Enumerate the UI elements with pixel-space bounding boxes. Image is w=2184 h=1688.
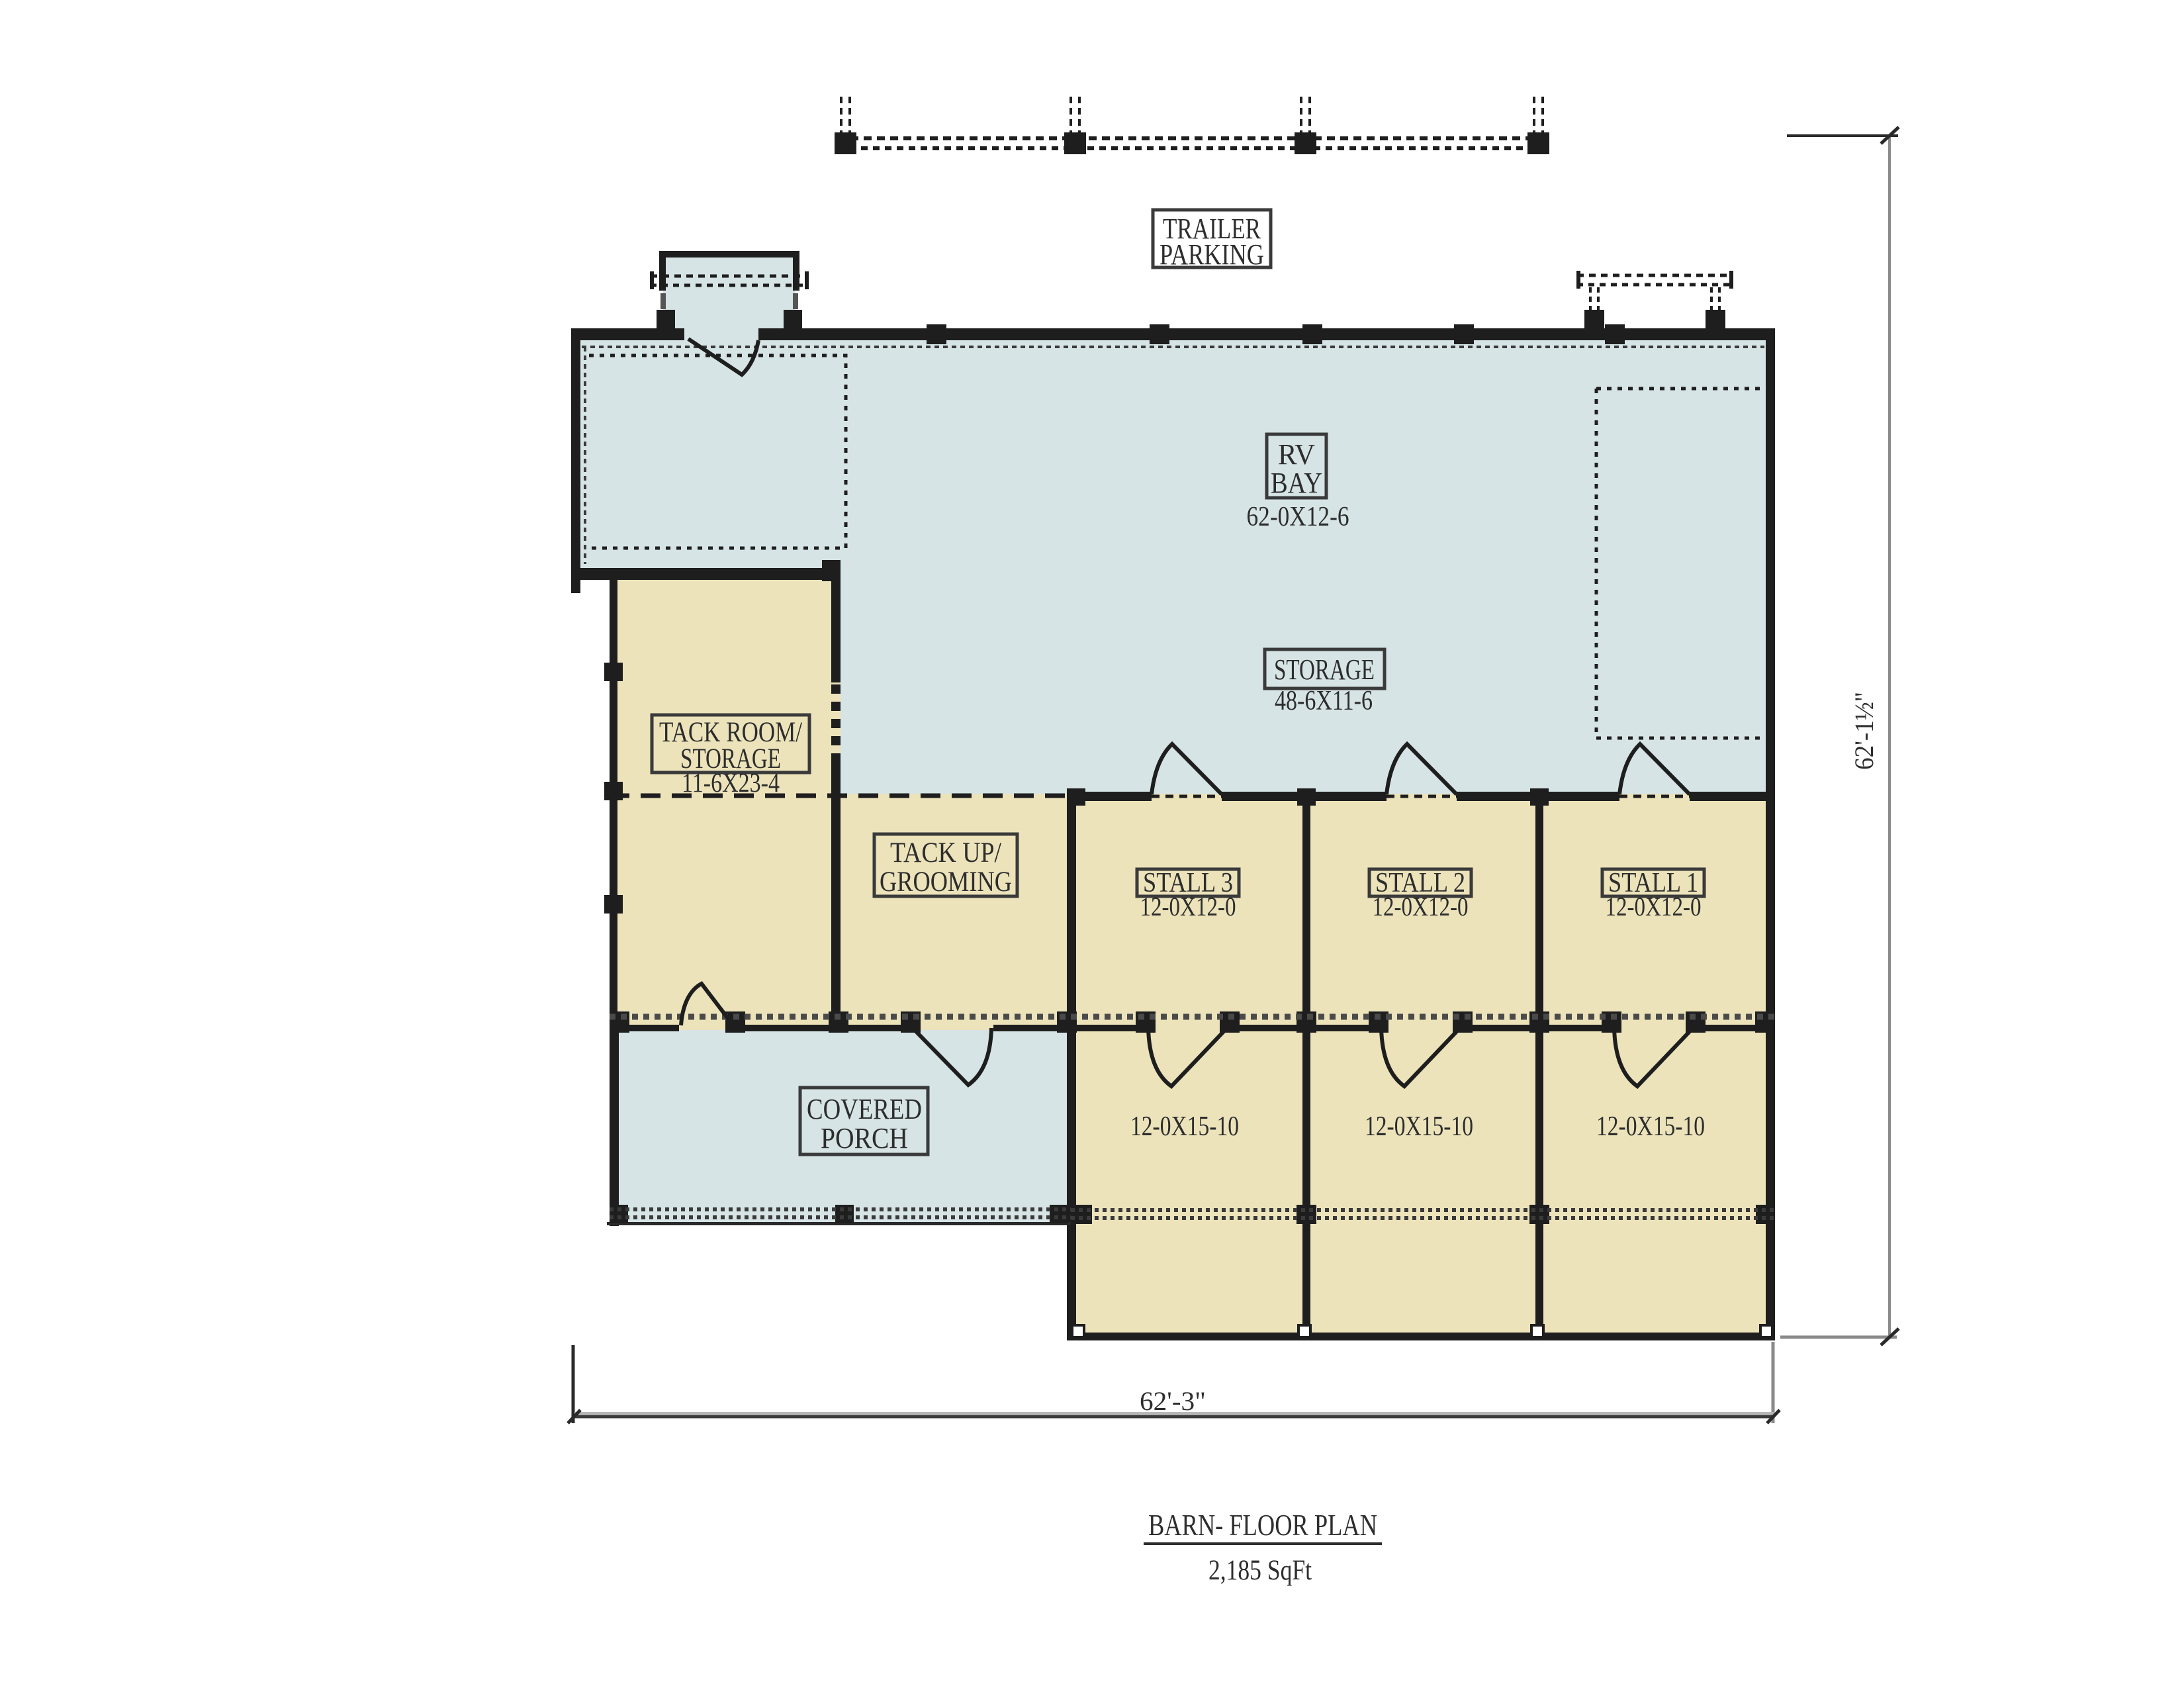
svg-text:12-0X15-10: 12-0X15-10 [1130,1111,1239,1142]
svg-text:62-0X12-6: 62-0X12-6 [1247,502,1349,532]
svg-text:RV: RV [1278,438,1315,471]
svg-text:62'-1½": 62'-1½" [1849,692,1879,770]
svg-text:BAY: BAY [1271,467,1322,499]
svg-text:TACK UP/: TACK UP/ [890,837,1001,868]
svg-text:STORAGE: STORAGE [1274,653,1375,686]
svg-text:BARN- FLOOR PLAN: BARN- FLOOR PLAN [1148,1508,1377,1542]
svg-text:12-0X15-10: 12-0X15-10 [1596,1111,1705,1142]
svg-text:48-6X11-6: 48-6X11-6 [1275,686,1373,716]
svg-text:12-0X12-0: 12-0X12-0 [1373,892,1469,921]
svg-text:2,185 SqFt: 2,185 SqFt [1208,1555,1312,1586]
svg-text:PORCH: PORCH [821,1122,908,1154]
svg-text:GROOMING: GROOMING [880,867,1012,898]
svg-text:11-6X23-4: 11-6X23-4 [682,767,780,798]
svg-text:PARKING: PARKING [1160,238,1264,271]
svg-text:62'-3": 62'-3" [1140,1386,1206,1416]
svg-text:12-0X12-0: 12-0X12-0 [1140,892,1236,921]
svg-text:12-0X15-10: 12-0X15-10 [1365,1111,1473,1142]
svg-text:12-0X12-0: 12-0X12-0 [1606,892,1702,921]
svg-text:COVERED: COVERED [807,1093,922,1125]
